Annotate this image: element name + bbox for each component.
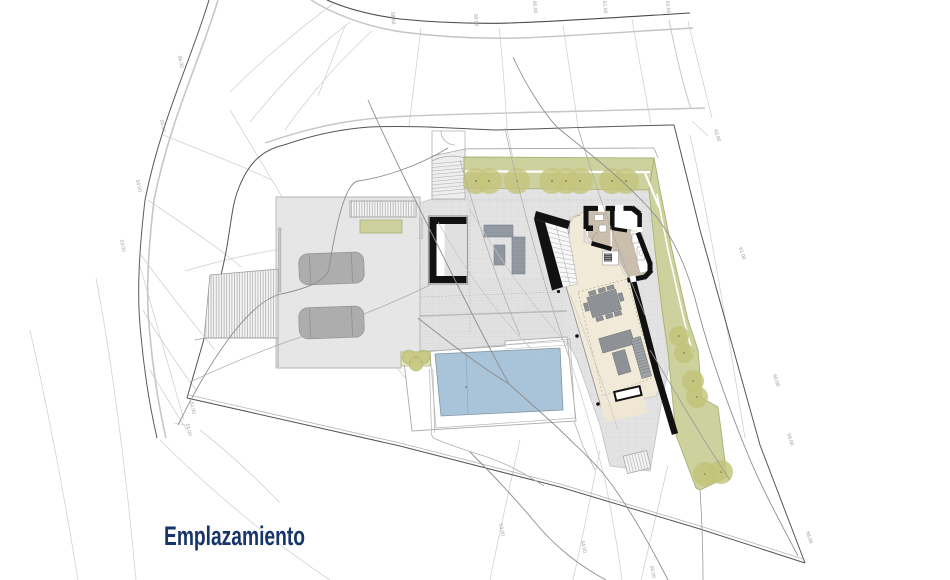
svg-text:Emplazamiento: Emplazamiento	[164, 521, 305, 551]
svg-text:62.00: 62.00	[664, 1, 671, 14]
svg-text:60.00: 60.00	[531, 1, 538, 14]
svg-text:61.00: 61.00	[601, 1, 608, 14]
svg-text:59.00: 59.00	[472, 14, 479, 27]
svg-text:58.00: 58.00	[389, 12, 396, 25]
